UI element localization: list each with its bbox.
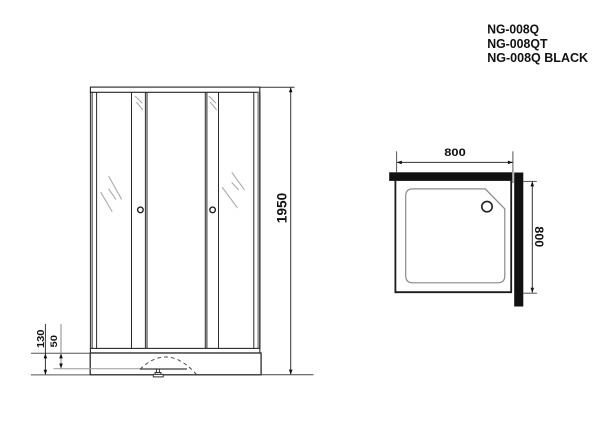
svg-text:130: 130 [36, 329, 47, 348]
svg-text:800: 800 [532, 226, 546, 247]
svg-text:NG-008QT: NG-008QT [487, 36, 547, 51]
svg-text:50: 50 [49, 335, 60, 348]
svg-text:NG-008Q: NG-008Q [487, 21, 539, 36]
svg-text:1950: 1950 [274, 193, 290, 224]
svg-text:NG-008Q BLACK: NG-008Q BLACK [487, 50, 588, 65]
svg-text:800: 800 [444, 147, 466, 159]
